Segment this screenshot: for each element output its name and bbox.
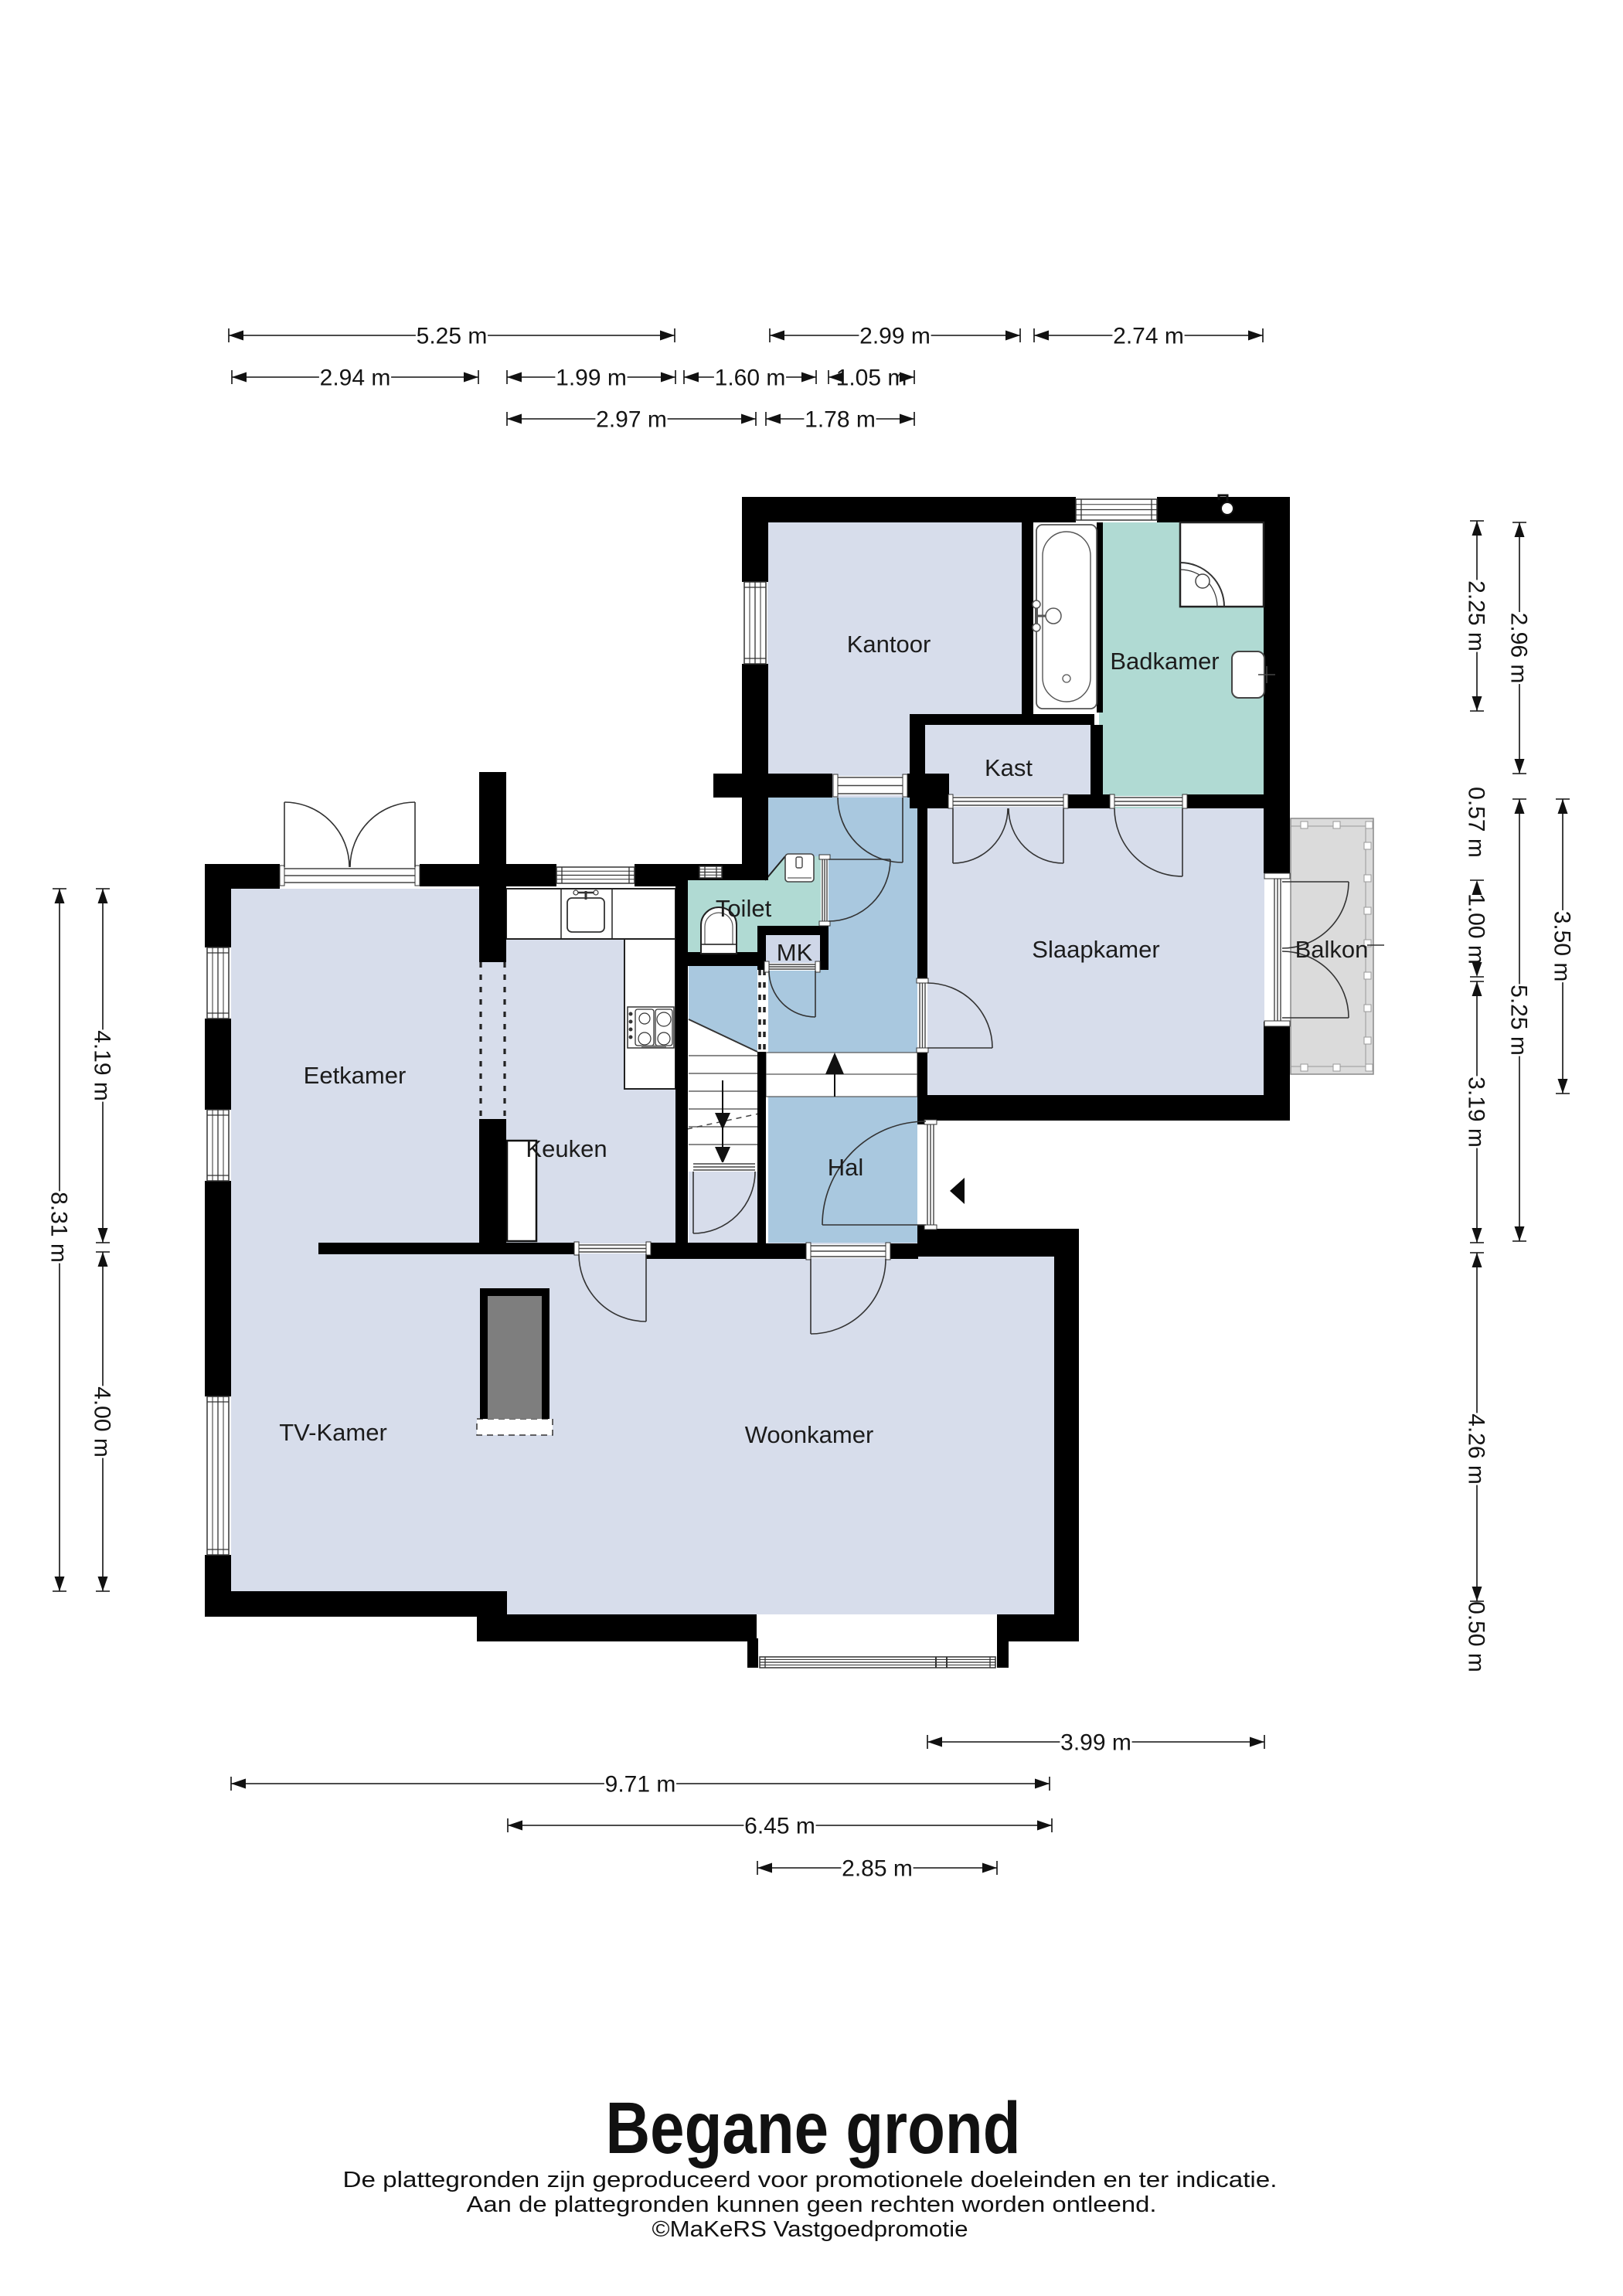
svg-text:0.57 m: 0.57 m (1464, 787, 1489, 858)
svg-text:6.45 m: 6.45 m (744, 1814, 815, 1839)
svg-text:©MaKeRS Vastgoedpromotie: ©MaKeRS Vastgoedpromotie (652, 2217, 968, 2242)
svg-text:De plattegronden zijn geproduc: De plattegronden zijn geproduceerd voor … (343, 2168, 1278, 2192)
svg-text:Badkamer: Badkamer (1110, 648, 1219, 675)
svg-text:4.19 m: 4.19 m (90, 1030, 115, 1101)
svg-text:5.25 m: 5.25 m (1506, 985, 1532, 1056)
svg-text:1.99 m: 1.99 m (556, 366, 627, 391)
svg-text:8.31 m: 8.31 m (46, 1192, 72, 1263)
svg-text:Slaapkamer: Slaapkamer (1032, 936, 1159, 963)
svg-text:3.19 m: 3.19 m (1464, 1077, 1489, 1148)
svg-text:2.25 m: 2.25 m (1464, 580, 1489, 651)
svg-text:0.50 m: 0.50 m (1464, 1601, 1489, 1672)
svg-text:9.71 m: 9.71 m (605, 1772, 676, 1798)
svg-text:5.25 m: 5.25 m (417, 324, 488, 349)
svg-text:2.74 m: 2.74 m (1113, 324, 1184, 349)
svg-text:Kantoor: Kantoor (847, 631, 931, 658)
svg-text:3.50 m: 3.50 m (1550, 911, 1575, 982)
svg-text:4.00 m: 4.00 m (90, 1386, 115, 1458)
svg-text:Hal: Hal (828, 1154, 864, 1181)
svg-text:Aan de plattegronden kunnen ge: Aan de plattegronden kunnen geen rechten… (467, 2192, 1157, 2217)
svg-text:2.97 m: 2.97 m (596, 407, 667, 433)
svg-text:1.60 m: 1.60 m (715, 366, 786, 391)
svg-text:Keuken: Keuken (526, 1135, 607, 1162)
svg-text:Balkon: Balkon (1295, 936, 1369, 963)
svg-text:1.00 m: 1.00 m (1464, 893, 1489, 964)
svg-text:2.85 m: 2.85 m (842, 1856, 913, 1882)
svg-text:2.96 m: 2.96 m (1506, 613, 1532, 684)
svg-text:Eetkamer: Eetkamer (304, 1062, 407, 1089)
svg-text:Toilet: Toilet (716, 895, 772, 922)
svg-text:2.94 m: 2.94 m (320, 366, 391, 391)
svg-text:1.05 m: 1.05 m (836, 366, 907, 391)
svg-text:3.99 m: 3.99 m (1060, 1730, 1131, 1756)
svg-text:Kast: Kast (985, 754, 1033, 781)
svg-text:TV-Kamer: TV-Kamer (279, 1419, 387, 1446)
svg-text:2.99 m: 2.99 m (859, 324, 931, 349)
svg-text:MK: MK (777, 939, 813, 966)
svg-text:1.78 m: 1.78 m (805, 407, 876, 433)
svg-text:Begane grond: Begane grond (606, 2087, 1021, 2169)
svg-text:4.26 m: 4.26 m (1464, 1413, 1489, 1485)
svg-text:Woonkamer: Woonkamer (745, 1421, 874, 1448)
